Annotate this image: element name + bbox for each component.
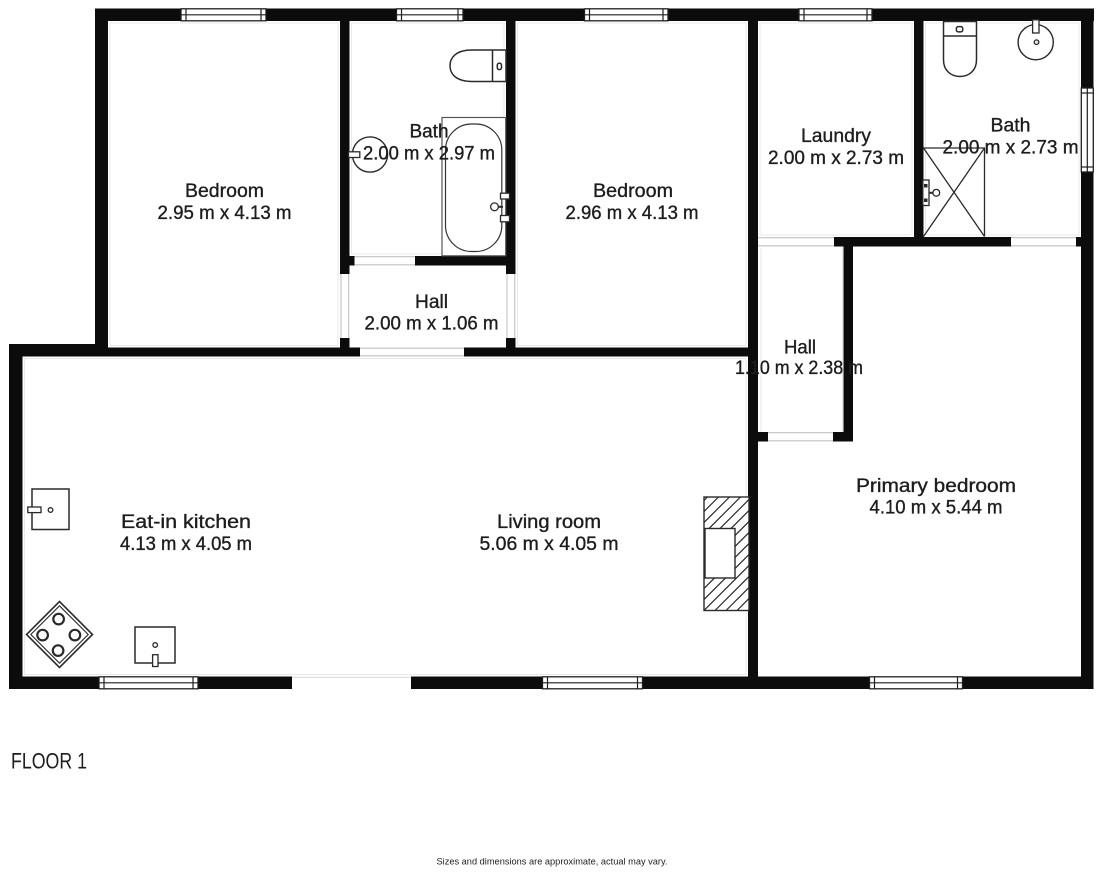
svg-text:4.13 m x 4.05 m: 4.13 m x 4.05 m [120,534,252,555]
svg-text:1.10 m x 2.38 m: 1.10 m x 2.38 m [735,358,863,379]
svg-text:2.96 m x 4.13 m: 2.96 m x 4.13 m [566,203,699,224]
svg-text:2.00 m x 2.73 m: 2.00 m x 2.73 m [943,137,1079,158]
svg-text:2.00 m x 1.06 m: 2.00 m x 1.06 m [365,313,499,334]
svg-text:5.06 m x 4.05 m: 5.06 m x 4.05 m [480,534,619,555]
svg-text:2.95 m x 4.13 m: 2.95 m x 4.13 m [158,203,292,224]
svg-text:Eat-in kitchen: Eat-in kitchen [121,512,251,533]
svg-text:Bath: Bath [410,121,449,142]
svg-text:Hall: Hall [415,292,448,313]
svg-text:Living room: Living room [497,512,601,533]
svg-text:Hall: Hall [784,337,816,358]
svg-text:Sizes and dimensions are appro: Sizes and dimensions are approximate, ac… [437,857,668,868]
svg-text:Primary bedroom: Primary bedroom [856,476,1016,497]
svg-text:2.00 m x 2.97 m: 2.00 m x 2.97 m [363,143,495,164]
svg-text:2.00 m x 2.73 m: 2.00 m x 2.73 m [768,148,904,169]
svg-text:4.10 m x 5.44 m: 4.10 m x 5.44 m [870,497,1003,518]
svg-text:Bedroom: Bedroom [593,181,673,202]
svg-text:Laundry: Laundry [801,126,871,147]
svg-text:FLOOR 1: FLOOR 1 [11,749,87,774]
svg-text:Bath: Bath [991,115,1031,136]
svg-text:Bedroom: Bedroom [185,181,264,202]
